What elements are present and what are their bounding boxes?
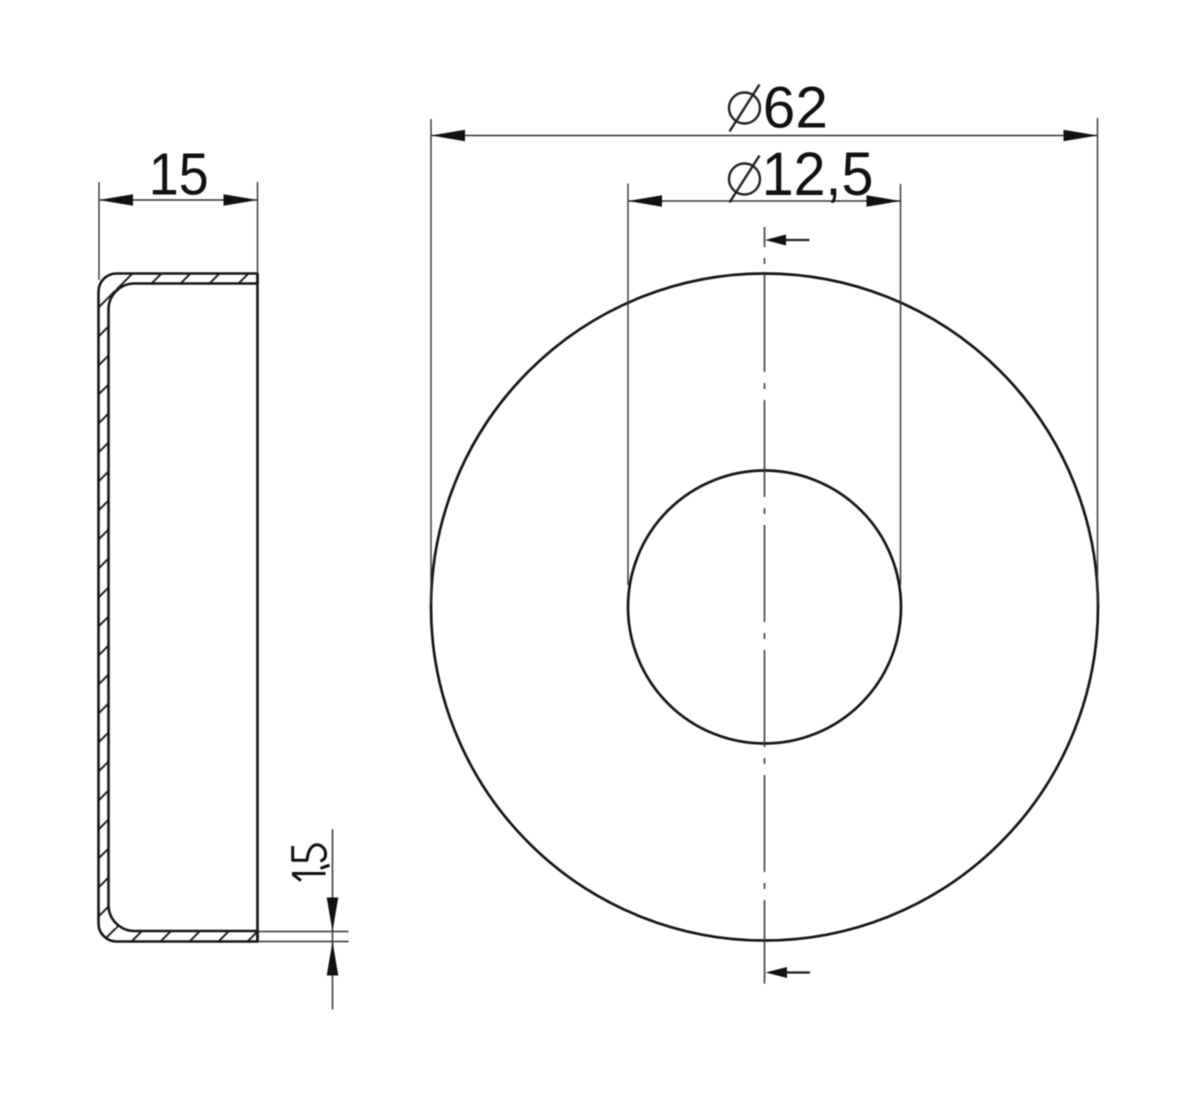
svg-text:12,5: 12,5 [762,139,874,208]
svg-text:15: 15 [149,142,209,208]
svg-text:62: 62 [763,76,828,141]
